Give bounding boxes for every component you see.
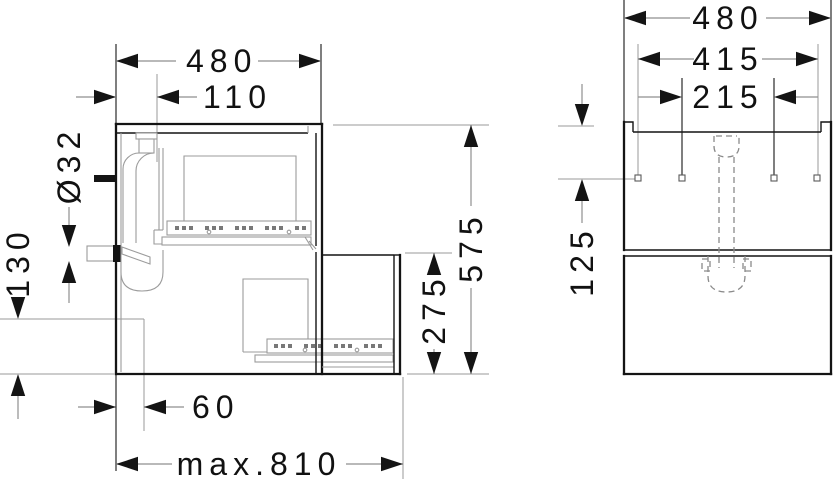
wall-crossing <box>113 245 121 262</box>
arrow-right-icon <box>660 90 682 104</box>
siphon-trap <box>121 245 163 291</box>
wall-bracket <box>94 175 117 182</box>
arrow-up-icon <box>62 261 76 283</box>
mounting-hole <box>771 175 777 181</box>
mounting-hole <box>679 175 685 181</box>
rail-profile <box>162 237 311 245</box>
right-view: 480 415 215 <box>558 0 831 374</box>
arrow-left-icon <box>116 457 138 471</box>
rail-profile <box>255 355 393 362</box>
drawer-box <box>184 156 296 221</box>
dim-label-height: 575 <box>453 211 489 282</box>
upper-drawer-rail <box>162 221 313 250</box>
arrow-left-icon <box>157 90 179 104</box>
dim-front-clearance-60: 60 <box>78 389 240 425</box>
arrow-left-icon <box>116 54 138 68</box>
arrow-right-icon <box>94 400 116 414</box>
siphon-hidden-outline <box>702 136 751 292</box>
trap-nut-left <box>702 259 710 271</box>
arrow-left-icon <box>144 400 166 414</box>
drain-collar <box>136 133 157 139</box>
top-right-tab <box>821 122 831 132</box>
arrow-left-icon <box>624 11 646 25</box>
dim-drain-offset-110: 110 <box>76 74 272 162</box>
dim-label-width: 480 <box>186 43 257 79</box>
dim-label-drain-offset: 110 <box>203 79 272 115</box>
mounting-hole <box>814 175 820 181</box>
dim-label-outlet-height: 130 <box>0 226 36 297</box>
cabinet-lower-section <box>624 256 831 374</box>
dim-drawer-height-275: 275 <box>405 253 452 374</box>
arrow-down-icon <box>464 352 478 374</box>
spec-drawing-canvas: 480 110 Ø32 130 <box>0 0 833 482</box>
dim-height-575: 575 <box>333 125 489 374</box>
spec-drawing-page: 480 110 Ø32 130 <box>0 0 833 482</box>
top-left-tab <box>624 122 633 132</box>
arrow-down-icon <box>11 297 25 319</box>
dim-mount-inner-215: 215 <box>638 78 818 175</box>
dim-label-front-clearance: 60 <box>192 389 240 425</box>
dim-label-width: 480 <box>692 0 763 36</box>
cabinet-upper-section <box>624 122 831 250</box>
wall-outlet-pipe <box>87 245 123 262</box>
arrow-down-icon <box>575 104 589 126</box>
dim-max-extension-810: max.810 <box>116 374 403 482</box>
arrow-down-icon <box>427 352 441 374</box>
arrow-left-icon <box>638 52 660 66</box>
mounting-hole <box>635 175 641 181</box>
dim-label-mount-inner: 215 <box>692 79 763 115</box>
drain-pipe <box>123 133 157 243</box>
elbow-inner <box>136 153 154 171</box>
lower-drawer-rail <box>255 339 393 362</box>
arrow-up-icon <box>464 125 478 147</box>
dim-label-top-offset: 125 <box>564 225 600 296</box>
arrow-right-icon <box>381 457 403 471</box>
arrow-up-icon <box>575 179 589 201</box>
arrow-right-icon <box>94 90 116 104</box>
dim-label-mount-outer: 415 <box>692 41 763 77</box>
trap-body <box>708 256 745 292</box>
arrow-right-icon <box>796 52 818 66</box>
dim-label-drain-diameter: Ø32 <box>51 126 87 204</box>
arrow-up-icon <box>11 374 25 396</box>
arrow-up-icon <box>427 253 441 275</box>
arrow-left-icon <box>774 90 796 104</box>
left-view: 480 110 Ø32 130 <box>0 43 489 482</box>
cabinet-front <box>309 124 322 374</box>
trap-nut-right <box>743 259 751 271</box>
arrow-right-icon <box>299 54 321 68</box>
arrow-right-icon <box>809 11 831 25</box>
dim-drain-diameter-32: Ø32 <box>51 126 87 303</box>
drain-cup <box>714 136 739 157</box>
arrow-down-icon <box>62 225 76 247</box>
drain-tailpiece <box>139 139 154 153</box>
dim-label-max-extension: max.810 <box>177 446 342 482</box>
dim-label-drawer-height: 275 <box>416 273 452 344</box>
